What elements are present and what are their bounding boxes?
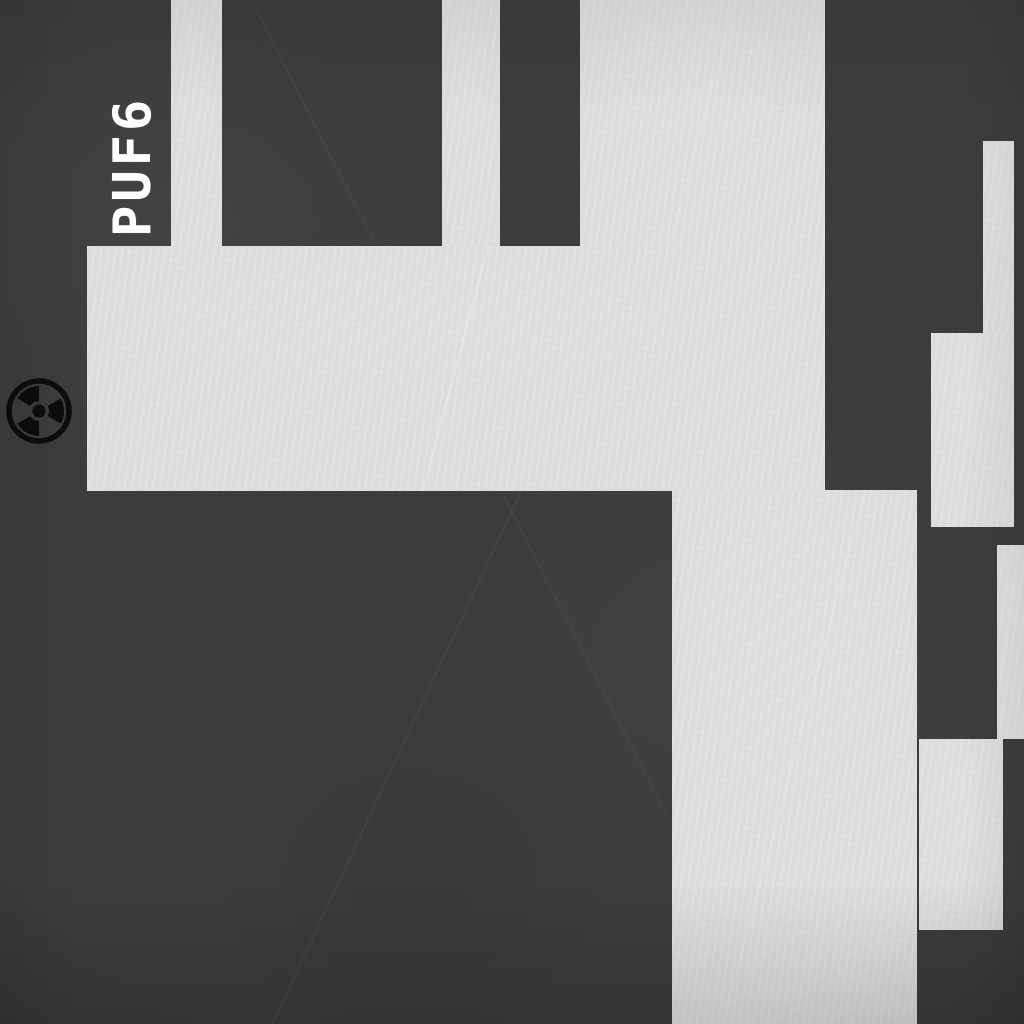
room-corridor-main — [672, 490, 917, 1024]
game-map-viewport[interactable]: PUF6 — [0, 0, 1024, 1024]
room-nook-right-lower — [997, 545, 1024, 739]
room-room-right-lower — [919, 739, 1003, 930]
room-nook-right-upper — [983, 141, 1014, 333]
radiation-icon — [6, 378, 72, 444]
room-label: PUF6 — [112, 90, 155, 237]
room-room-right-upper — [931, 333, 1014, 527]
room-hall-band — [87, 246, 825, 491]
room-corridor-top-b — [442, 0, 500, 246]
room-room-top — [580, 0, 825, 247]
room-corridor-top-a — [171, 0, 222, 246]
